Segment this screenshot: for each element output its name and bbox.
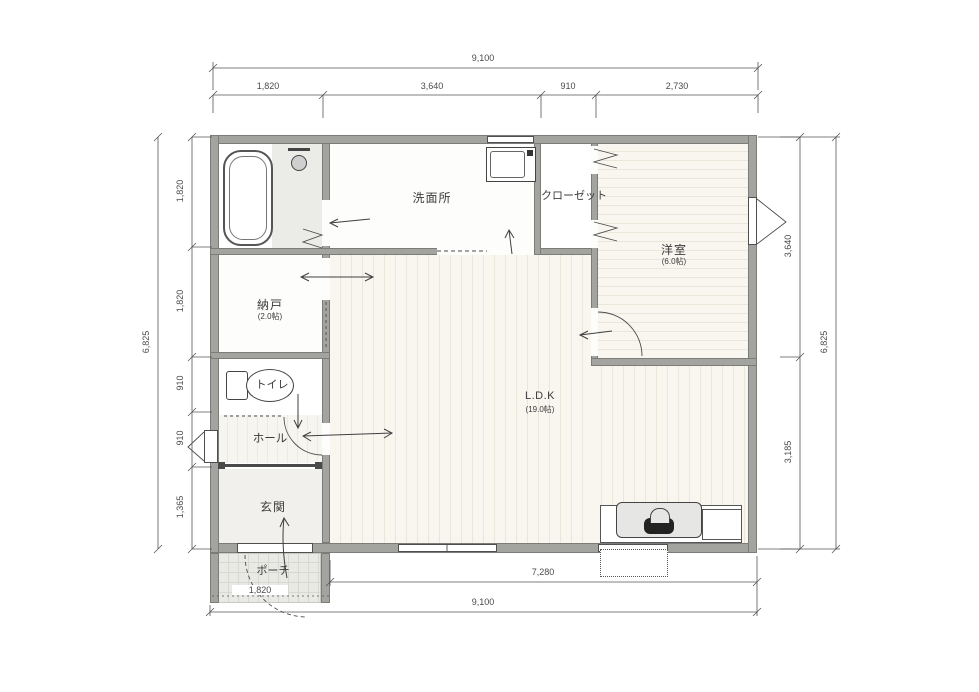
bifold-door-icon [594,149,617,168]
label-ldk-size: (19.0帖) [490,404,590,415]
dim-right-seg-1: 3,185 [783,412,793,492]
dim-top-total: 9,100 [443,53,523,63]
label-toilet: トイレ [222,376,322,392]
dim-top-seg-2: 910 [528,81,608,91]
dim-top-seg-0: 1,820 [228,81,308,91]
dim-bottom-main: 7,280 [503,567,583,577]
dim-left-seg-1: 1,820 [175,261,185,341]
label-storage-size: (2.0帖) [220,311,320,322]
dim-right-seg-0: 3,640 [783,206,793,286]
dim-porch-width: 1,820 [232,585,288,595]
dim-left-total: 6,825 [141,302,151,382]
dim-top-seg-1: 3,640 [392,81,472,91]
dim-right-total: 6,825 [819,302,829,382]
dim-left-seg-4: 1,365 [175,467,185,547]
dim-bottom-total: 9,100 [443,597,523,607]
label-washroom: 洗面所 [382,189,482,206]
label-hall: ホール [220,430,320,446]
dim-top-seg-3: 2,730 [637,81,717,91]
dim-left-seg-3: 910 [175,398,185,478]
label-porch: ポーチ [223,562,323,578]
dim-left-seg-0: 1,820 [175,151,185,231]
label-entrance: 玄関 [223,498,323,515]
label-ldk: L.D.K [490,390,590,402]
label-western-room-size: (6.0帖) [624,256,724,267]
label-closet: クローゼット [526,187,622,203]
floor-plan-canvas: 洗面所 クローゼット 洋室 (6.0帖) 納戸 (2.0帖) トイレ ホール 玄… [0,0,979,692]
